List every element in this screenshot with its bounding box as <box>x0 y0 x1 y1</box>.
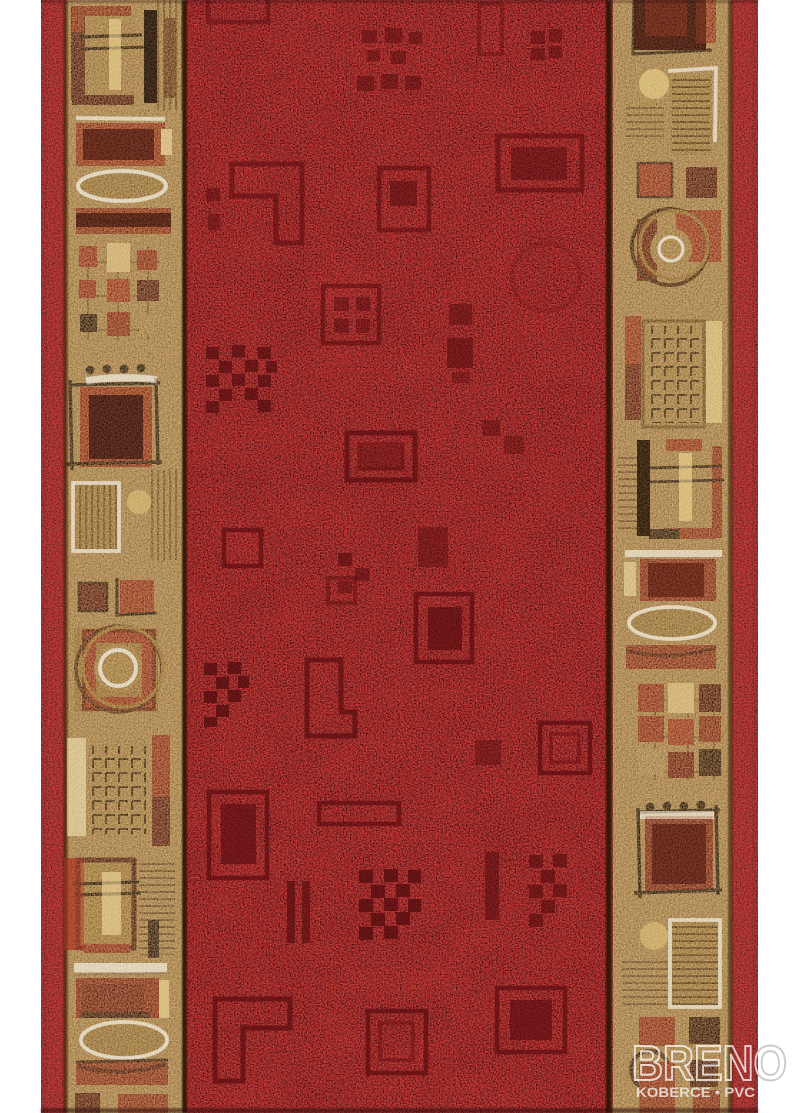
svg-text:KOBERCE • PVC: KOBERCE • PVC <box>636 1085 755 1100</box>
